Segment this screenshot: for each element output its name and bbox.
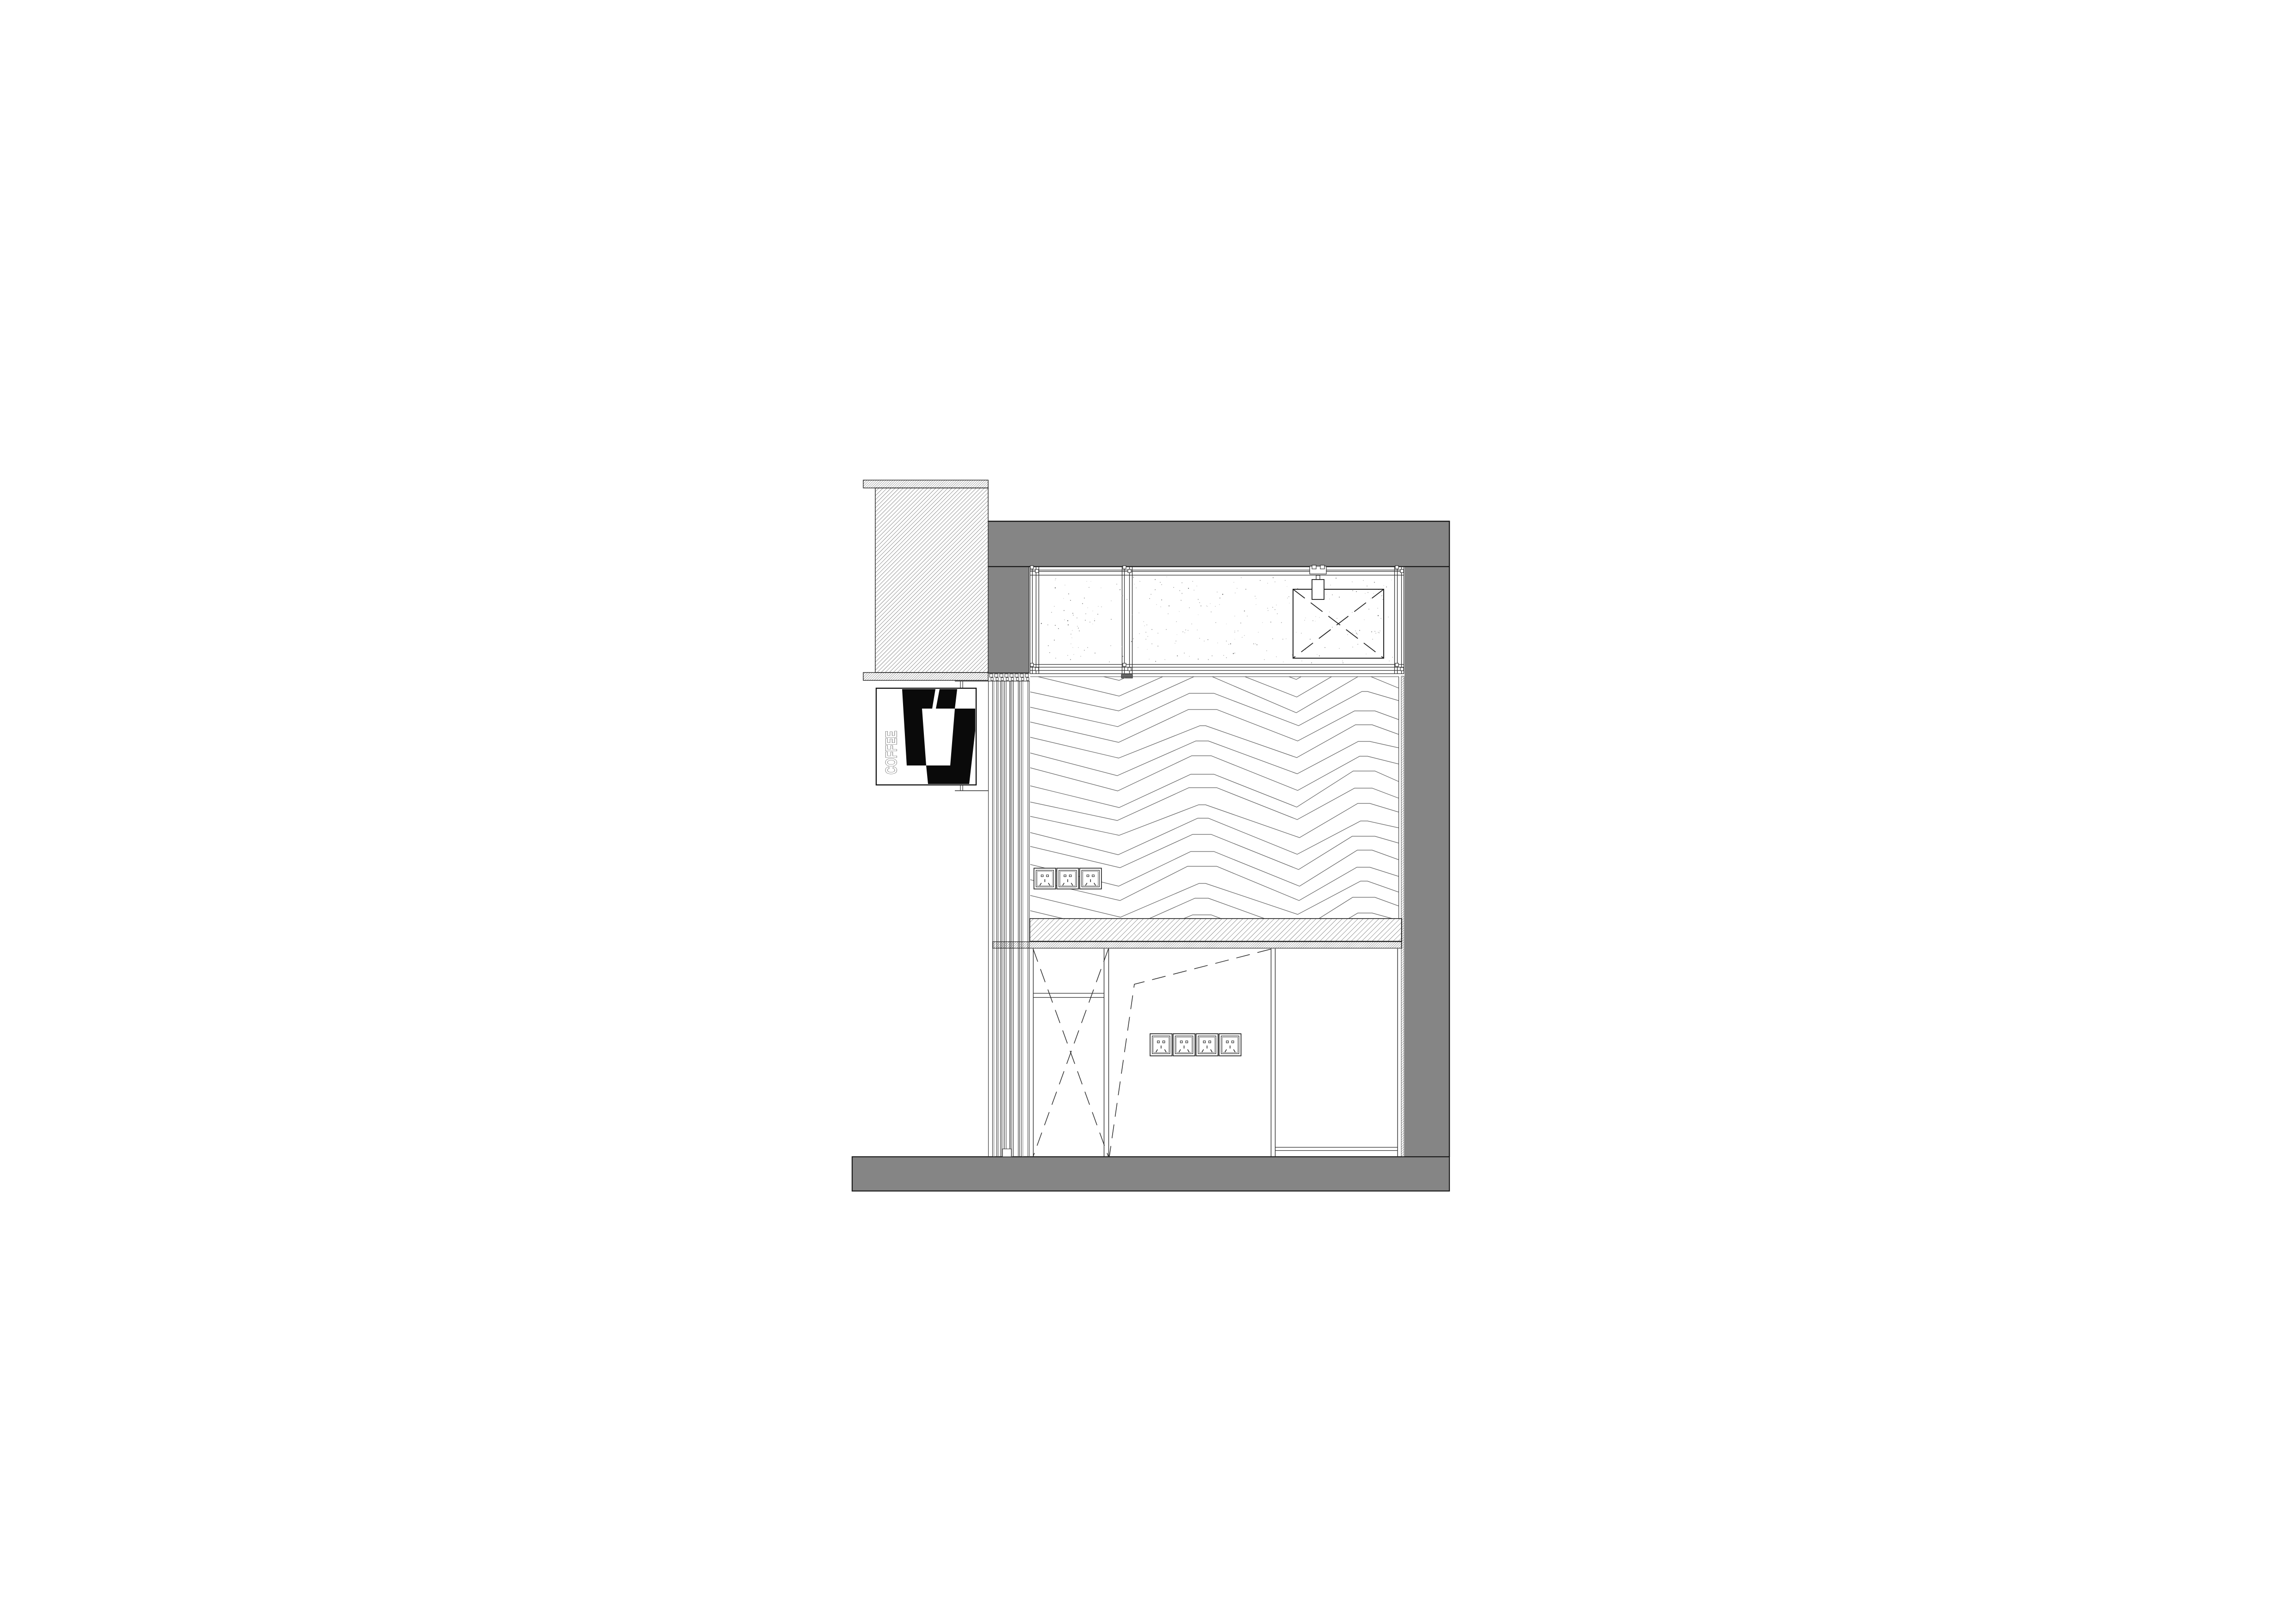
svg-text:COFFEE: COFFEE bbox=[883, 731, 900, 774]
